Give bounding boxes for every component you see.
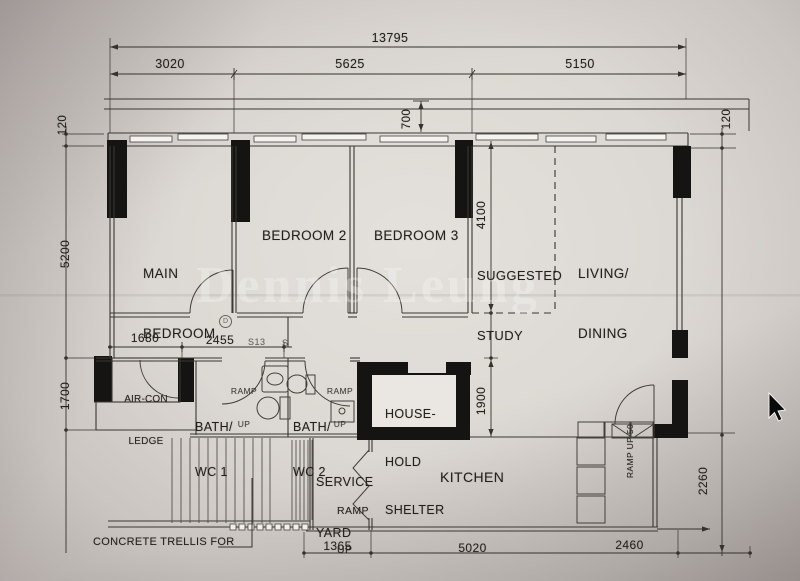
label-kitchen: KITCHEN (440, 469, 504, 487)
dim-left-upper: 5200 (56, 232, 74, 276)
entry-door-arc (615, 385, 654, 424)
dim-left-lower: 1700 (56, 374, 74, 418)
label-bedroom2: BEDROOM 2 (262, 228, 347, 245)
vent-blocks (230, 524, 308, 530)
label-ramp-entry: RAMP UP 50 (614, 430, 646, 472)
dim-top-total: 13795 (350, 31, 430, 47)
top-ledge-lines (104, 99, 749, 131)
bath1-sink (262, 366, 288, 392)
dim-ledge-depth: 700 (398, 102, 416, 136)
label-ramp-bath1: RAMP UP (226, 364, 262, 452)
dim-right-offset: 120 (718, 102, 736, 136)
label-ramp-bath2: RAMP UP (322, 364, 358, 452)
tag-s13: S13 (248, 337, 266, 348)
label-household-shelter: HOUSE- HOLD SHELTER (385, 374, 445, 550)
label-living-dining: LIVING/ DINING (578, 224, 629, 384)
floorplan-photo: Dennis Leung 13795 3020 5625 5150 700 12… (0, 0, 800, 581)
tag-circle: D (219, 315, 232, 328)
label-main-bedroom: MAIN BEDROOM (143, 224, 216, 384)
dim-top-left: 3020 (130, 57, 210, 73)
dim-left-offset: 120 (54, 108, 72, 142)
label-study: SUGGESTED STUDY (477, 226, 562, 386)
label-aircon-ledge: AIR-CON LEDGE (118, 365, 174, 477)
dim-bottom-right: 2460 (602, 538, 657, 553)
label-bedroom3: BEDROOM 3 (374, 228, 459, 245)
label-ramp-service: RAMP UP (337, 479, 369, 581)
tag-s: S (282, 338, 289, 349)
dim-top-mid: 5625 (310, 57, 390, 73)
dim-top-right: 5150 (540, 57, 620, 73)
label-concrete-trellis: CONCRETE TRELLIS FOR (93, 536, 235, 550)
dim-right-lower: 2260 (694, 456, 712, 506)
shelter-door-gap (408, 362, 446, 373)
mouse-cursor (769, 393, 786, 421)
dim-bottom-mid: 5020 (445, 541, 500, 556)
